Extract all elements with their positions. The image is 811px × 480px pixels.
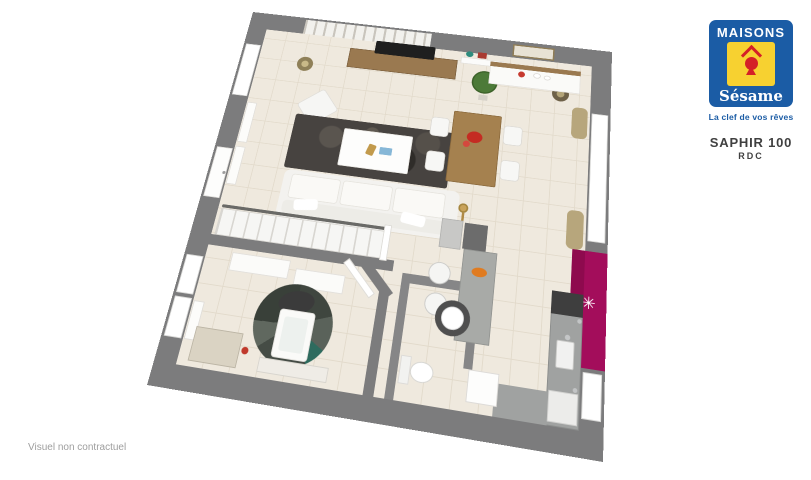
brand-tagline: La clef de vos rêves [709,112,794,122]
logo-title: MAISONS [717,25,785,40]
plant-pot [478,94,488,100]
roof-icon [740,45,761,66]
sofa-pillow-1 [293,199,318,210]
sideboard-vase-2 [544,75,551,80]
coffee-decor-book [379,147,393,156]
model-name: SAPHIR 100 [710,135,792,150]
kitchen-tall-unit [439,218,464,250]
logo-subtitle: Sésame [719,87,783,105]
dining-chair-3 [502,125,523,147]
keyhole-icon [727,42,775,86]
brand-block: MAISONS Sésame La clef de vos rêves SAPH… [699,20,803,161]
wall-fixture-1 [577,319,582,324]
dining-chair-4 [499,160,520,183]
wall-fixture-2 [573,388,578,394]
curtain-bottom-right [566,210,585,251]
sideboard-vase-1 [533,73,541,79]
bedroom-cabinet [188,326,244,368]
window-right-kitchen [581,372,602,422]
kitchen-appliance [551,290,584,318]
window-right-living [587,113,608,243]
dining-chair-1 [429,116,450,137]
maisons-sesame-logo: MAISONS Sésame [709,20,793,107]
shelf-books [478,52,488,59]
curtain-top-right [571,107,588,140]
kitchen-column [462,223,488,252]
sink-faucet [565,334,571,340]
kitchen-dishwasher [547,390,578,427]
dining-chair-2 [424,150,446,172]
dining-table [445,111,502,188]
kitchen-sink [555,340,574,371]
disclaimer-text: Visuel non contractuel [28,442,126,453]
keyhole-stem [746,66,756,75]
floor-plan-3d: ✳ [147,12,612,462]
plan-header: SAPHIR 100 RDC [710,135,792,161]
level-label: RDC [710,151,792,161]
wc-door-open [465,369,499,407]
